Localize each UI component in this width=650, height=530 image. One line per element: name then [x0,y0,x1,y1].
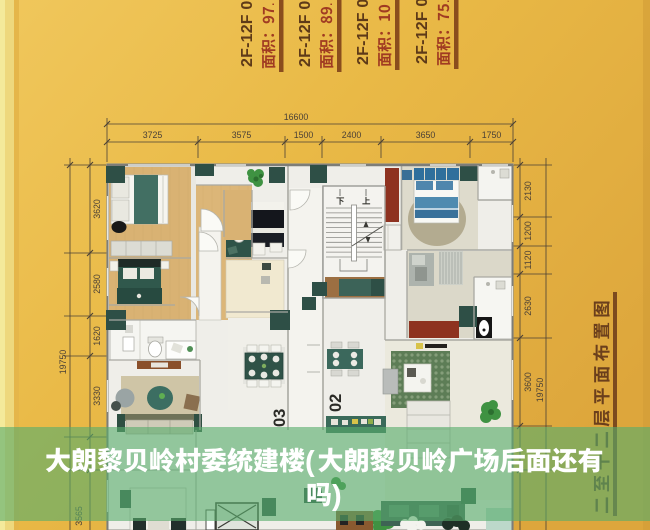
svg-text:2F-12F 03: 2F-12F 03 [355,0,372,65]
svg-text:2580: 2580 [92,274,102,294]
svg-text:2F-12F 01: 2F-12F 01 [239,0,256,67]
svg-text:1620: 1620 [92,326,102,346]
svg-text:2F-12F 04: 2F-12F 04 [414,0,431,64]
svg-text:1200: 1200 [523,221,533,241]
svg-text:.: . [436,0,453,3]
svg-text:2F-12F 02: 2F-12F 02 [297,0,314,67]
svg-text:3620: 3620 [92,199,102,219]
svg-text:3650: 3650 [416,130,436,140]
svg-text:): ) [332,480,342,512]
svg-text:2630: 2630 [523,296,533,316]
svg-text:.: . [319,2,336,6]
svg-text:16600: 16600 [284,112,309,122]
svg-text:02: 02 [327,394,345,412]
svg-text:3330: 3330 [92,386,102,406]
svg-text:3600: 3600 [523,372,533,392]
svg-text:1750: 1750 [482,130,502,140]
svg-text:(: ( [305,446,315,478]
svg-text:2400: 2400 [342,130,362,140]
svg-text:2130: 2130 [523,181,533,201]
svg-text:3725: 3725 [143,130,163,140]
svg-text:19750: 19750 [535,378,545,403]
svg-text:19750: 19750 [58,350,68,375]
svg-text:3575: 3575 [232,130,252,140]
svg-text:1500: 1500 [294,130,314,140]
svg-text:.: . [261,2,278,6]
svg-text:1120: 1120 [523,250,533,269]
svg-text:03: 03 [271,409,289,427]
